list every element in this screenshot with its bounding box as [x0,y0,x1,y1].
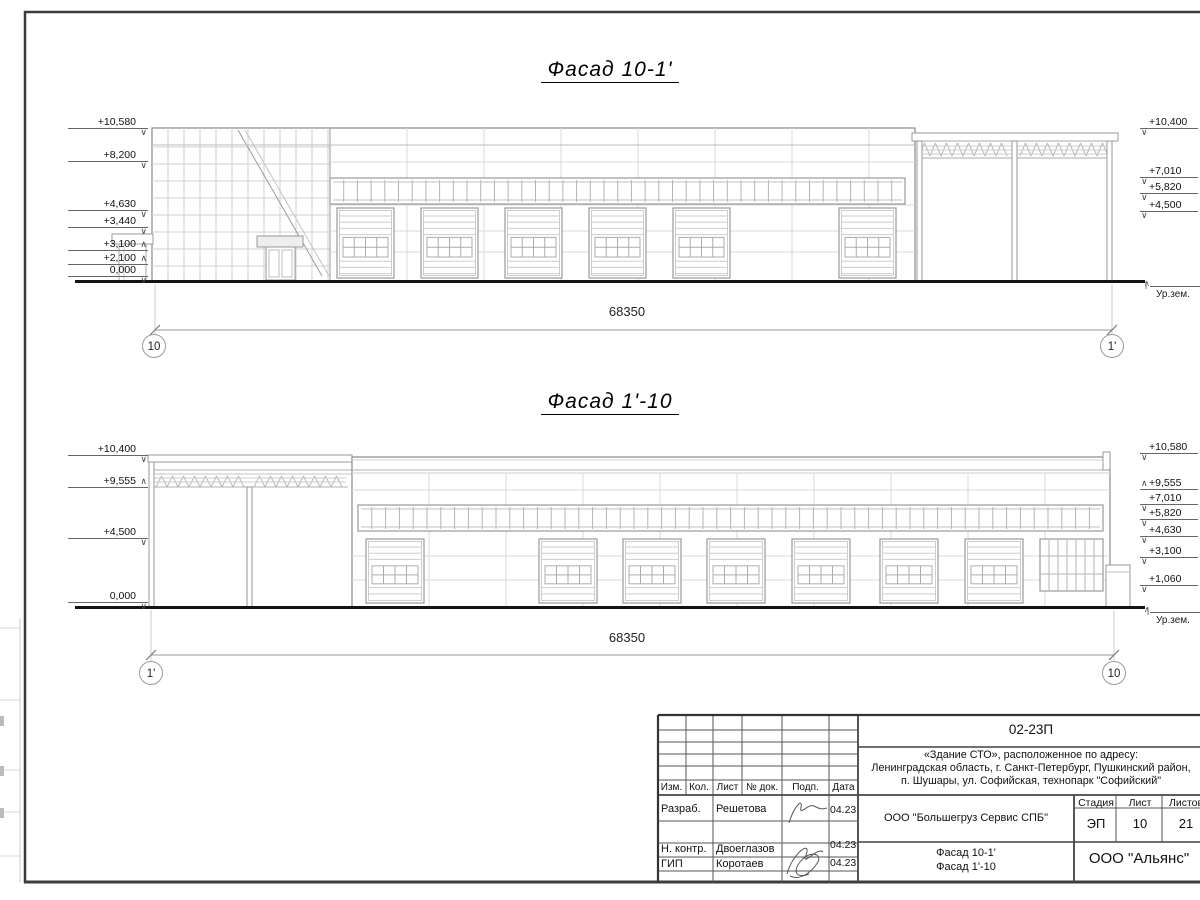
facade-2-dimension: 68350 [340,630,914,645]
elevation-mark: +9,555∧ [68,475,148,488]
elevation-mark: +4,500∨ [68,526,148,539]
elevation-mark: +10,400∨ [68,443,148,456]
titleblock-client: ООО "Большегруз Сервис СПБ" [860,812,1072,824]
sheet-value: 10 [1118,816,1162,831]
elevation-mark: +10,580∨ [1140,441,1198,454]
annotation-overlay: Фасад 10-1' 68350 10 1' ∧Ур.зем. Фасад 1… [0,0,1200,900]
facade-1-title: Фасад 10-1' [330,58,890,82]
elevation-mark-label: 0,000 [110,264,136,276]
sheets-label: Листов [1164,797,1200,809]
elevation-arrow-icon: ∨ [1141,453,1148,462]
elevation-mark-label: +10,580 [98,116,136,128]
elevation-mark-label: +5,820 [1149,181,1181,193]
elevation-arrow-icon: ∨ [1141,585,1148,594]
sheets-value: 21 [1164,816,1200,831]
elevation-mark: +4,500∨ [1140,199,1198,212]
col-data: Дата [829,782,858,793]
titleblock-project-code: 02-23П [860,722,1200,737]
axis-bubble-right-f2: 10 [1102,661,1126,685]
elevation-mark: +5,820∨ [1140,181,1198,194]
axis-bubble-left-f2: 1' [139,661,163,685]
elevation-mark: +3,100∨ [1140,545,1198,558]
ground-level-label-f1: ∧Ур.зем. [1150,286,1200,300]
elevation-arrow-icon: ∨ [140,455,147,464]
elevation-mark-label: +3,100 [104,238,136,250]
elevation-mark: +4,630∨ [1140,524,1198,537]
elevation-arrow-icon: ∨ [140,602,147,611]
elevation-mark-label: 0,000 [110,590,136,602]
elevation-mark: +5,820∨ [1140,507,1198,520]
row-nkontr-date: 04.23 [830,839,856,851]
elevation-mark: +7,010∨ [1140,492,1198,505]
elevation-mark: +8,200∨ [68,149,148,162]
row-gip-date: 04.23 [830,857,856,869]
col-list: Лист [713,782,742,793]
elevation-arrow-icon: ∨ [140,276,147,285]
elevation-mark-label: +4,630 [104,198,136,210]
elevation-mark-label: +1,060 [1149,573,1181,585]
facade-1-dimension: 68350 [340,304,914,319]
col-ndok: № док. [742,782,782,793]
elevation-mark-label: +5,820 [1149,507,1181,519]
elevation-mark-label: +10,400 [98,443,136,455]
elevation-arrow-icon: ∨ [140,538,147,547]
elevation-mark-label: +7,010 [1149,165,1181,177]
elevation-mark-label: +2,100 [104,252,136,264]
elevation-mark: +1,060∨ [1140,573,1198,586]
elevation-mark: +3,100∧ [68,238,148,251]
titleblock-project-line3: п. Шушары, ул. Софийская, технопарк "Соф… [860,775,1200,787]
elevation-arrow-icon: ∨ [140,227,147,236]
elevation-mark: +10,400∨ [1140,116,1198,129]
elevation-mark-label: +10,400 [1149,116,1187,128]
elevation-mark: +4,630∨ [68,198,148,211]
row-gip-role: ГИП [661,858,683,870]
elevation-arrow-icon: ∧ [140,240,147,249]
ground-level-label-f2: ∧Ур.зем. [1150,612,1200,626]
elevation-mark-label: +4,500 [1149,199,1181,211]
drawing-title-line1: Фасад 10-1' [860,847,1072,859]
elevation-mark-label: +9,555 [104,475,136,487]
elevation-arrow-icon: ∧ [140,477,147,486]
drawing-sheet: { "facades": [ { "title": "Фасад 10-1'",… [0,0,1200,900]
elevation-arrow-icon: ∨ [1141,211,1148,220]
elevation-mark: +3,440∨ [68,215,148,228]
elevation-mark-label: +8,200 [104,149,136,161]
elevation-mark-label: +7,010 [1149,492,1181,504]
axis-bubble-right-f1: 1' [1100,334,1124,358]
elevation-arrow-icon: ∨ [140,161,147,170]
row-razrab-role: Разраб. [661,803,701,815]
stage-label: Стадия [1076,797,1116,809]
row-razrab-name: Решетова [716,803,766,815]
elevation-mark: 0,000∨ [68,590,148,603]
drawing-title-line2: Фасад 1'-10 [860,861,1072,873]
elevation-mark-label: +10,580 [1149,441,1187,453]
col-kol: Кол. [685,782,713,793]
facade-2-title: Фасад 1'-10 [330,390,890,414]
elevation-mark: 0,000∨ [68,264,148,277]
elevation-mark-label: +3,440 [104,215,136,227]
col-izm: Изм. [658,782,685,793]
elevation-mark: +7,010∨ [1140,165,1198,178]
axis-bubble-left-f1: 10 [142,334,166,358]
row-gip-name: Коротаев [716,858,764,870]
stage-value: ЭП [1076,816,1116,831]
row-razrab-date: 04.23 [830,804,856,816]
elevation-mark: +10,580∨ [68,116,148,129]
elevation-mark-label: +4,500 [104,526,136,538]
elevation-mark-label: +4,630 [1149,524,1181,536]
ground-tick-icon: ∧ [1144,605,1150,614]
titleblock-project-line1: «Здание СТО», расположенное по адресу: [860,749,1200,761]
row-nkontr-role: Н. контр. [661,843,706,855]
elevation-arrow-icon: ∨ [1141,557,1148,566]
sheet-label: Лист [1118,797,1162,809]
elevation-mark-label: +3,100 [1149,545,1181,557]
elevation-mark-label: +9,555 [1149,477,1181,489]
elevation-arrow-icon: ∧ [140,254,147,263]
col-podp: Подп. [782,782,829,793]
titleblock-project-line2: Ленинградская область, г. Санкт-Петербур… [860,762,1200,774]
elevation-arrow-icon: ∨ [1141,128,1148,137]
ground-tick-icon: ∧ [1144,279,1150,288]
elevation-arrow-icon: ∧ [1141,479,1148,488]
row-nkontr-name: Двоеглазов [716,843,774,855]
elevation-mark: +9,555∧ [1140,477,1198,490]
titleblock-org: ООО "Альянс" [1076,850,1200,867]
elevation-arrow-icon: ∨ [140,128,147,137]
elevation-arrow-icon: ∨ [1141,536,1148,545]
